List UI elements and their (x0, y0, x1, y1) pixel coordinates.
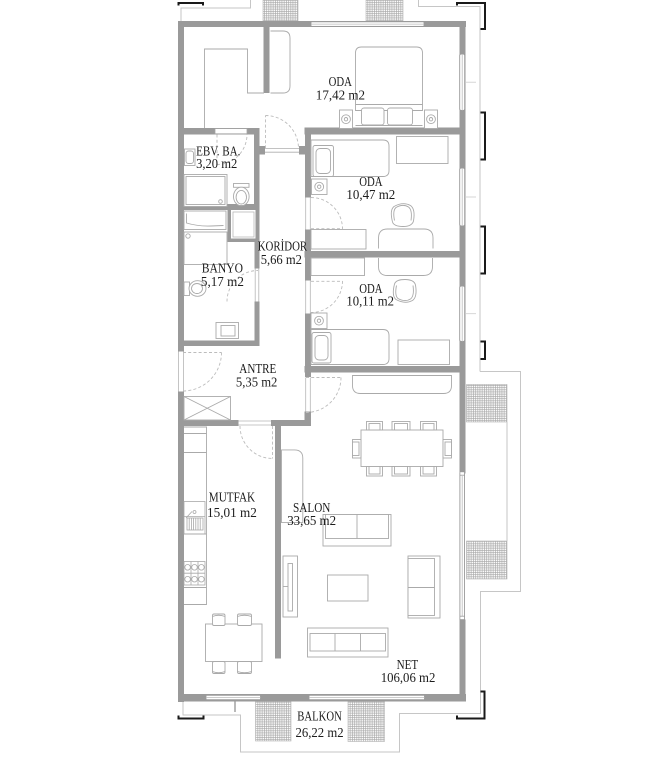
svg-text:26,22 m2: 26,22 m2 (296, 725, 344, 740)
svg-text:33,65 m2: 33,65 m2 (287, 513, 336, 528)
svg-text:17,42 m2: 17,42 m2 (316, 88, 365, 103)
svg-text:10,11 m2: 10,11 m2 (346, 294, 394, 309)
svg-text:MUTFAK: MUTFAK (209, 490, 255, 505)
svg-text:5,35 m2: 5,35 m2 (236, 375, 278, 390)
svg-text:BALKON: BALKON (297, 709, 342, 724)
svg-text:15,01 m2: 15,01 m2 (207, 505, 257, 520)
svg-text:10,47 m2: 10,47 m2 (346, 187, 395, 202)
svg-text:5,17 m2: 5,17 m2 (201, 274, 244, 289)
svg-text:5,66 m2: 5,66 m2 (261, 252, 302, 267)
svg-text:3,20 m2: 3,20 m2 (196, 156, 237, 171)
svg-text:106,06 m2: 106,06 m2 (381, 670, 436, 685)
